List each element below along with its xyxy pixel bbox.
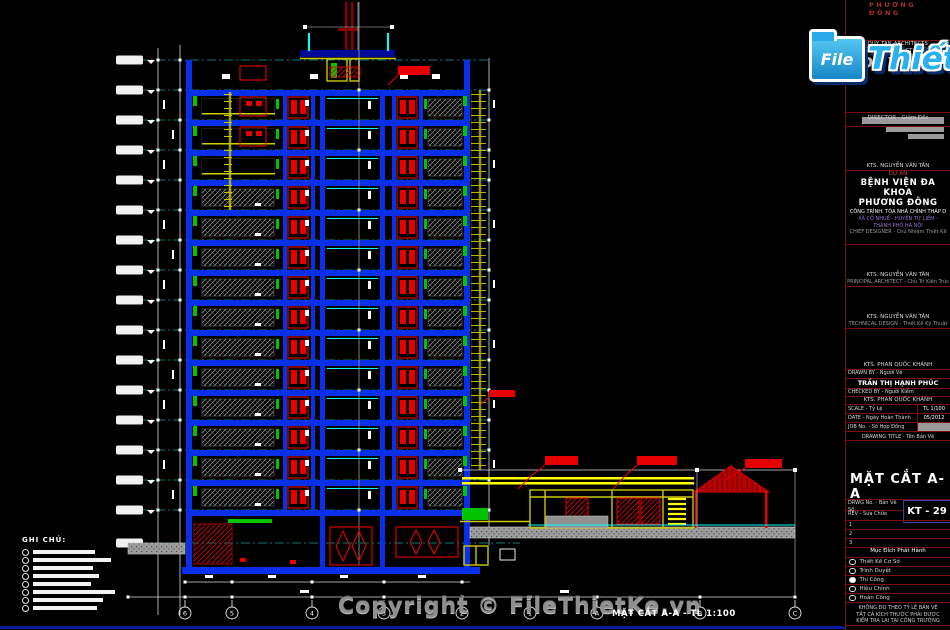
scale-value: TL 1/100 <box>917 405 950 413</box>
grid-bubble-label: 4 <box>310 610 314 618</box>
drawing-title-label: DRAWING TITLE - Tên Bản Vẽ <box>846 431 950 441</box>
issue-option: Trình Duyệt <box>846 567 950 576</box>
grid-bubble-label: 5 <box>230 610 234 618</box>
section-drawing: 6 5 4 3 2 1 A B C <box>0 0 845 630</box>
filethietke-logo: File Thiết Kế.vn <box>809 36 950 82</box>
note-text-bar <box>33 606 97 611</box>
issue-option: Thi Công <box>846 576 950 585</box>
rev-row: 2 <box>846 530 950 539</box>
note-item <box>22 556 115 564</box>
note-marker-icon <box>22 565 29 572</box>
roof-antenna <box>300 2 396 59</box>
titleblock-note: KHÔNG ĐO THEO TỶ LỆ BẢN VẼ TẤT CẢ KÍCH T… <box>846 602 950 626</box>
chief-label: CHIEF DESIGNER - Chủ Nhiệm Thiết Kế <box>846 229 950 236</box>
drawn-name: TRẦN THỊ HẠNH PHÚC <box>846 378 950 388</box>
folder-icon: File <box>809 36 865 82</box>
technical-label: TECHNICAL DESIGN - Thiết Kế Kỹ Thuật <box>846 321 950 328</box>
note-item <box>22 596 115 604</box>
note-marker-icon <box>22 573 29 580</box>
note-text-bar <box>33 566 93 571</box>
issue-option-label: Hiệu Chỉnh <box>860 586 890 593</box>
note-item <box>22 588 115 596</box>
tower-floors <box>186 2 470 565</box>
title-block: DUY TAN ARCHITECTS DESIGN & CONSTRUCTION… <box>845 0 950 630</box>
logo-name: Thiết Kế <box>868 41 950 77</box>
director-label: DIRECTOR - Giám Đốc <box>846 112 950 126</box>
project-name-line1: BỆNH VIỆN ĐA KHOA <box>846 178 950 198</box>
radio-checked-icon <box>849 577 856 584</box>
job-value-box <box>917 423 950 431</box>
scale-label: SCALE - Tỷ Lệ <box>846 406 917 413</box>
checked-name: KTS. PHAN QUỐC KHÁNH <box>846 396 950 404</box>
note-line: KIỂM TRA LẠI TẠI CÔNG TRƯỜNG <box>846 618 950 625</box>
drawing-sheet: 6 5 4 3 2 1 A B C PHƯƠNG ĐÔNG File Thiết… <box>0 0 950 630</box>
date-label: DATE - Ngày Hoàn Thành <box>846 415 917 422</box>
notes-title: GHI CHÚ: <box>22 536 115 544</box>
address-line1: XÃ CỔ NHUẾ - HUYỆN TỪ LIÊM - <box>846 216 950 223</box>
drawn-label: DRAWN BY - Người Vẽ <box>846 369 950 378</box>
note-marker-icon <box>22 589 29 596</box>
drwg-no-label: DRWG No. - Bản Vẽ Số <box>846 500 904 511</box>
logo-folder-text: File <box>821 50 854 69</box>
date-value: 05/2012 <box>917 414 950 422</box>
note-item <box>22 572 115 580</box>
note-text-bar <box>33 550 95 555</box>
note-item <box>22 604 115 612</box>
issue-option-label: Thiết Kế Cơ Sở <box>860 559 900 566</box>
radio-icon <box>849 595 856 602</box>
note-text-bar <box>33 558 111 563</box>
project-name-line2: PHƯƠNG ĐÔNG <box>846 198 950 208</box>
note-text-bar <box>33 590 115 595</box>
grid-bubble-label: 6 <box>183 610 187 618</box>
grid-bubble-label: C <box>793 610 798 618</box>
radio-icon <box>849 559 856 566</box>
director-name: KTS. NGUYỄN VĂN TÂN <box>867 163 930 170</box>
note-item <box>22 580 115 588</box>
note-item <box>22 548 115 556</box>
note-item <box>22 564 115 572</box>
note-text-bar <box>33 574 99 579</box>
rev-row: 1 <box>846 521 950 530</box>
work-item: CÔNG TRÌNH: TÒA NHÀ CHÍNH THÁP D <box>846 209 950 216</box>
drawing-title: MẶT CẮT A-A <box>846 474 950 499</box>
note-marker-icon <box>22 557 29 564</box>
note-marker-icon <box>22 605 29 612</box>
issue-option-label: Thi Công <box>860 577 884 584</box>
note-line: KHÔNG ĐO THEO TỶ LỆ BẢN VẼ <box>846 605 950 612</box>
issue-option: Thiết Kế Cơ Sở <box>846 558 950 567</box>
issue-option-label: Hoàn Công <box>860 595 890 602</box>
checked-label: CHECKED BY - Người Kiểm <box>846 388 950 396</box>
note-marker-icon <box>22 549 29 556</box>
left-dimension-chain <box>116 45 182 615</box>
notes-block: GHI CHÚ: <box>22 536 115 612</box>
note-text-bar <box>33 598 103 603</box>
radio-icon <box>849 568 856 575</box>
project-name-top: PHƯƠNG ĐÔNG <box>869 1 950 17</box>
drawing-caption: MẶT CẮT A-A - TL 1:100 <box>612 609 736 619</box>
issue-option: Hiệu Chỉnh <box>846 585 950 594</box>
note-marker-icon <box>22 597 29 604</box>
principal-label: PRINCIPAL ARCHITECT - Chủ Trì Kiến Trúc <box>846 279 950 286</box>
project-label: DỰ ÁN <box>846 171 950 178</box>
job-label: JOB No. - Số Hợp Đồng <box>846 424 917 431</box>
logo-text: Thiết Kế.vn <box>868 41 950 77</box>
issue-option-label: Trình Duyệt <box>860 568 892 575</box>
issue-purpose-title: Mục Đích Phát Hành <box>846 547 950 557</box>
technical-name: KTS. NGUYỄN VĂN TÂN <box>846 314 950 321</box>
principal-name: KTS. NGUYỄN VĂN TÂN <box>846 272 950 279</box>
design-chief-name: KTS. PHAN QUỐC KHÁNH <box>864 362 933 369</box>
right-facade <box>471 58 495 545</box>
radio-icon <box>849 586 856 593</box>
note-text-bar <box>33 582 91 587</box>
tower-base <box>182 516 515 574</box>
note-marker-icon <box>22 581 29 588</box>
sheet-bottom-border <box>0 626 950 629</box>
